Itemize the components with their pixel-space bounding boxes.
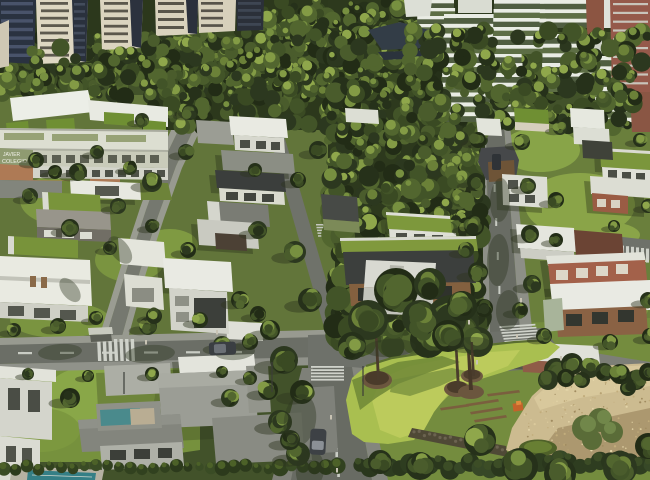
svg-text:JAVIER: JAVIER: [3, 152, 21, 158]
